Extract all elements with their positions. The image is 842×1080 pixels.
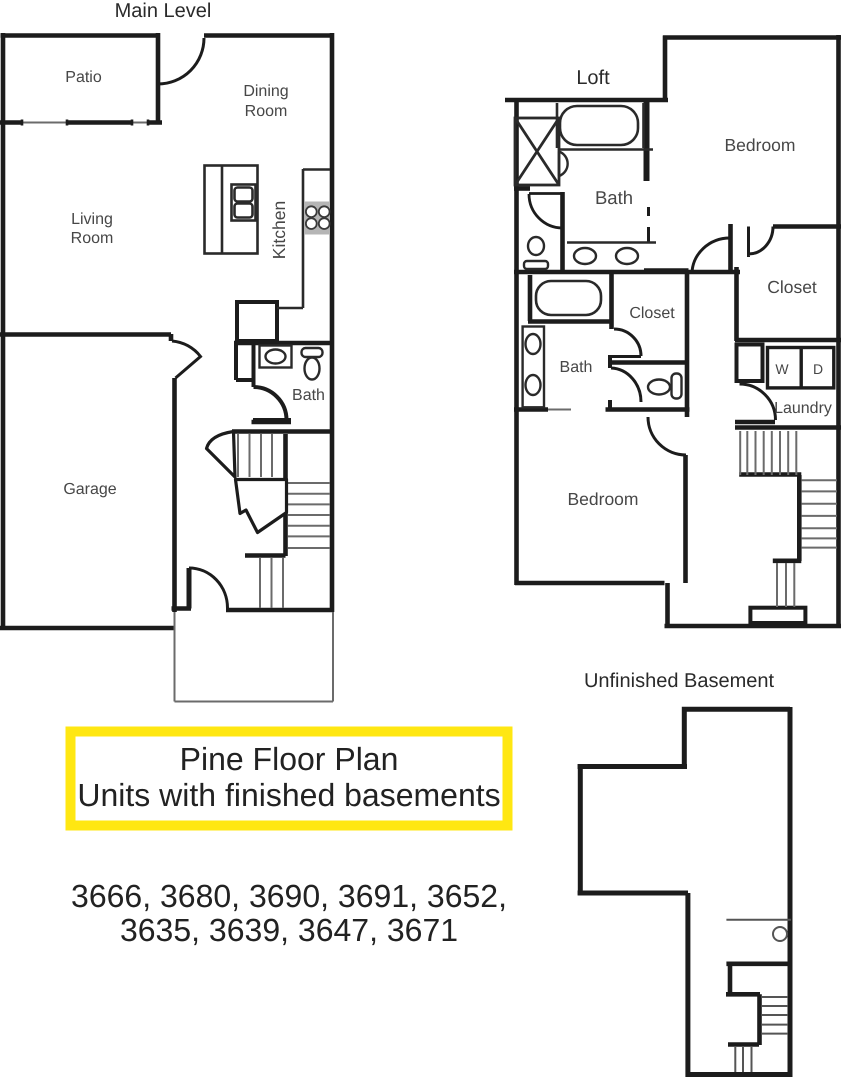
svg-text:D: D bbox=[813, 361, 823, 377]
svg-text:Room: Room bbox=[71, 230, 114, 247]
svg-text:Laundry: Laundry bbox=[774, 400, 832, 417]
svg-text:Units with finished basements: Units with finished basements bbox=[77, 777, 500, 813]
svg-text:Patio: Patio bbox=[65, 69, 102, 86]
svg-text:Bath: Bath bbox=[560, 359, 593, 376]
svg-text:Garage: Garage bbox=[63, 481, 116, 498]
svg-text:Room: Room bbox=[245, 103, 288, 120]
svg-text:3635, 3639, 3647, 3671: 3635, 3639, 3647, 3671 bbox=[120, 912, 458, 948]
svg-text:Closet: Closet bbox=[629, 305, 675, 322]
svg-text:Bath: Bath bbox=[595, 187, 633, 208]
svg-text:Bedroom: Bedroom bbox=[724, 135, 795, 155]
svg-text:Loft: Loft bbox=[576, 67, 610, 89]
svg-text:Dining: Dining bbox=[243, 83, 288, 100]
svg-text:Main Level: Main Level bbox=[115, 0, 212, 22]
svg-text:W: W bbox=[775, 361, 789, 377]
svg-text:Unfinished Basement: Unfinished Basement bbox=[584, 670, 775, 692]
svg-text:Bath: Bath bbox=[292, 387, 325, 404]
svg-text:Living: Living bbox=[71, 211, 113, 228]
svg-text:3666, 3680, 3690, 3691, 3652,: 3666, 3680, 3690, 3691, 3652, bbox=[71, 878, 507, 914]
svg-text:Pine Floor Plan: Pine Floor Plan bbox=[180, 741, 399, 777]
svg-text:Bedroom: Bedroom bbox=[567, 489, 638, 509]
svg-text:Kitchen: Kitchen bbox=[269, 201, 289, 259]
svg-text:Closet: Closet bbox=[767, 277, 817, 297]
